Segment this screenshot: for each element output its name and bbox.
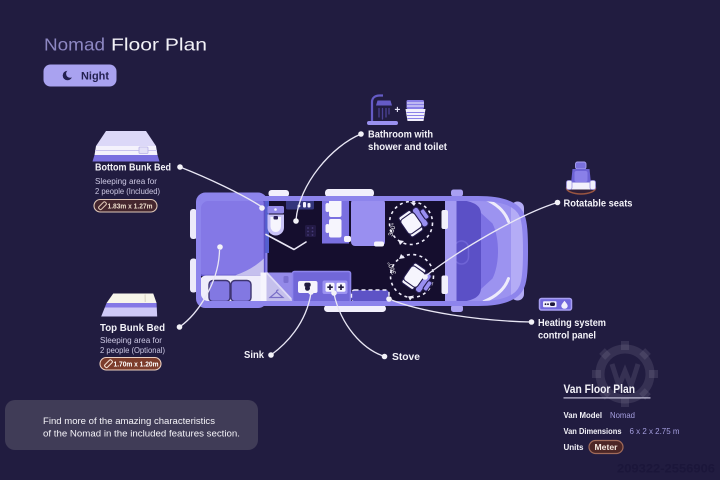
svg-text:of the Nomad in the included f: of the Nomad in the included features se… [43,429,240,439]
svg-text:2 people (Included): 2 people (Included) [95,186,160,196]
svg-text:Bottom Bunk Bed: Bottom Bunk Bed [95,163,171,174]
svg-text:Van Floor Plan: Van Floor Plan [564,384,636,396]
svg-text:+: + [395,105,401,116]
svg-text:Find more of the amazing chara: Find more of the amazing characteristics [43,416,216,426]
svg-text:shower and toilet: shower and toilet [368,142,448,153]
svg-text:Nomad: Nomad [44,35,105,55]
svg-text:1.70m x 1.20m: 1.70m x 1.20m [114,359,159,368]
svg-text:Units: Units [564,442,584,452]
svg-text:Stove: Stove [392,352,420,363]
svg-text:Heating system: Heating system [538,318,606,329]
svg-text:6 x 2 x 2.75 m: 6 x 2 x 2.75 m [630,426,680,436]
svg-text:2 people (Optional): 2 people (Optional) [100,345,165,355]
svg-text:1.83m x 1.27m: 1.83m x 1.27m [108,201,153,210]
svg-text:Van Dimensions: Van Dimensions [564,426,622,436]
svg-text:Floor Plan: Floor Plan [111,35,207,55]
svg-text:Sink: Sink [244,350,264,361]
svg-text:Night: Night [81,71,109,83]
svg-text:Bathroom with: Bathroom with [368,130,433,141]
svg-text:Meter: Meter [595,443,618,452]
svg-text:Nomad: Nomad [610,410,635,420]
svg-text:Rotatable seats: Rotatable seats [564,199,633,210]
svg-text:Sleeping area for: Sleeping area for [100,335,162,345]
svg-text:Van Model: Van Model [564,410,603,420]
svg-text:control panel: control panel [538,331,596,342]
svg-text:Sleeping area for: Sleeping area for [95,176,157,186]
svg-text:209322-2556906: 209322-2556906 [617,464,715,476]
svg-text:Top Bunk Bed: Top Bunk Bed [100,323,165,334]
